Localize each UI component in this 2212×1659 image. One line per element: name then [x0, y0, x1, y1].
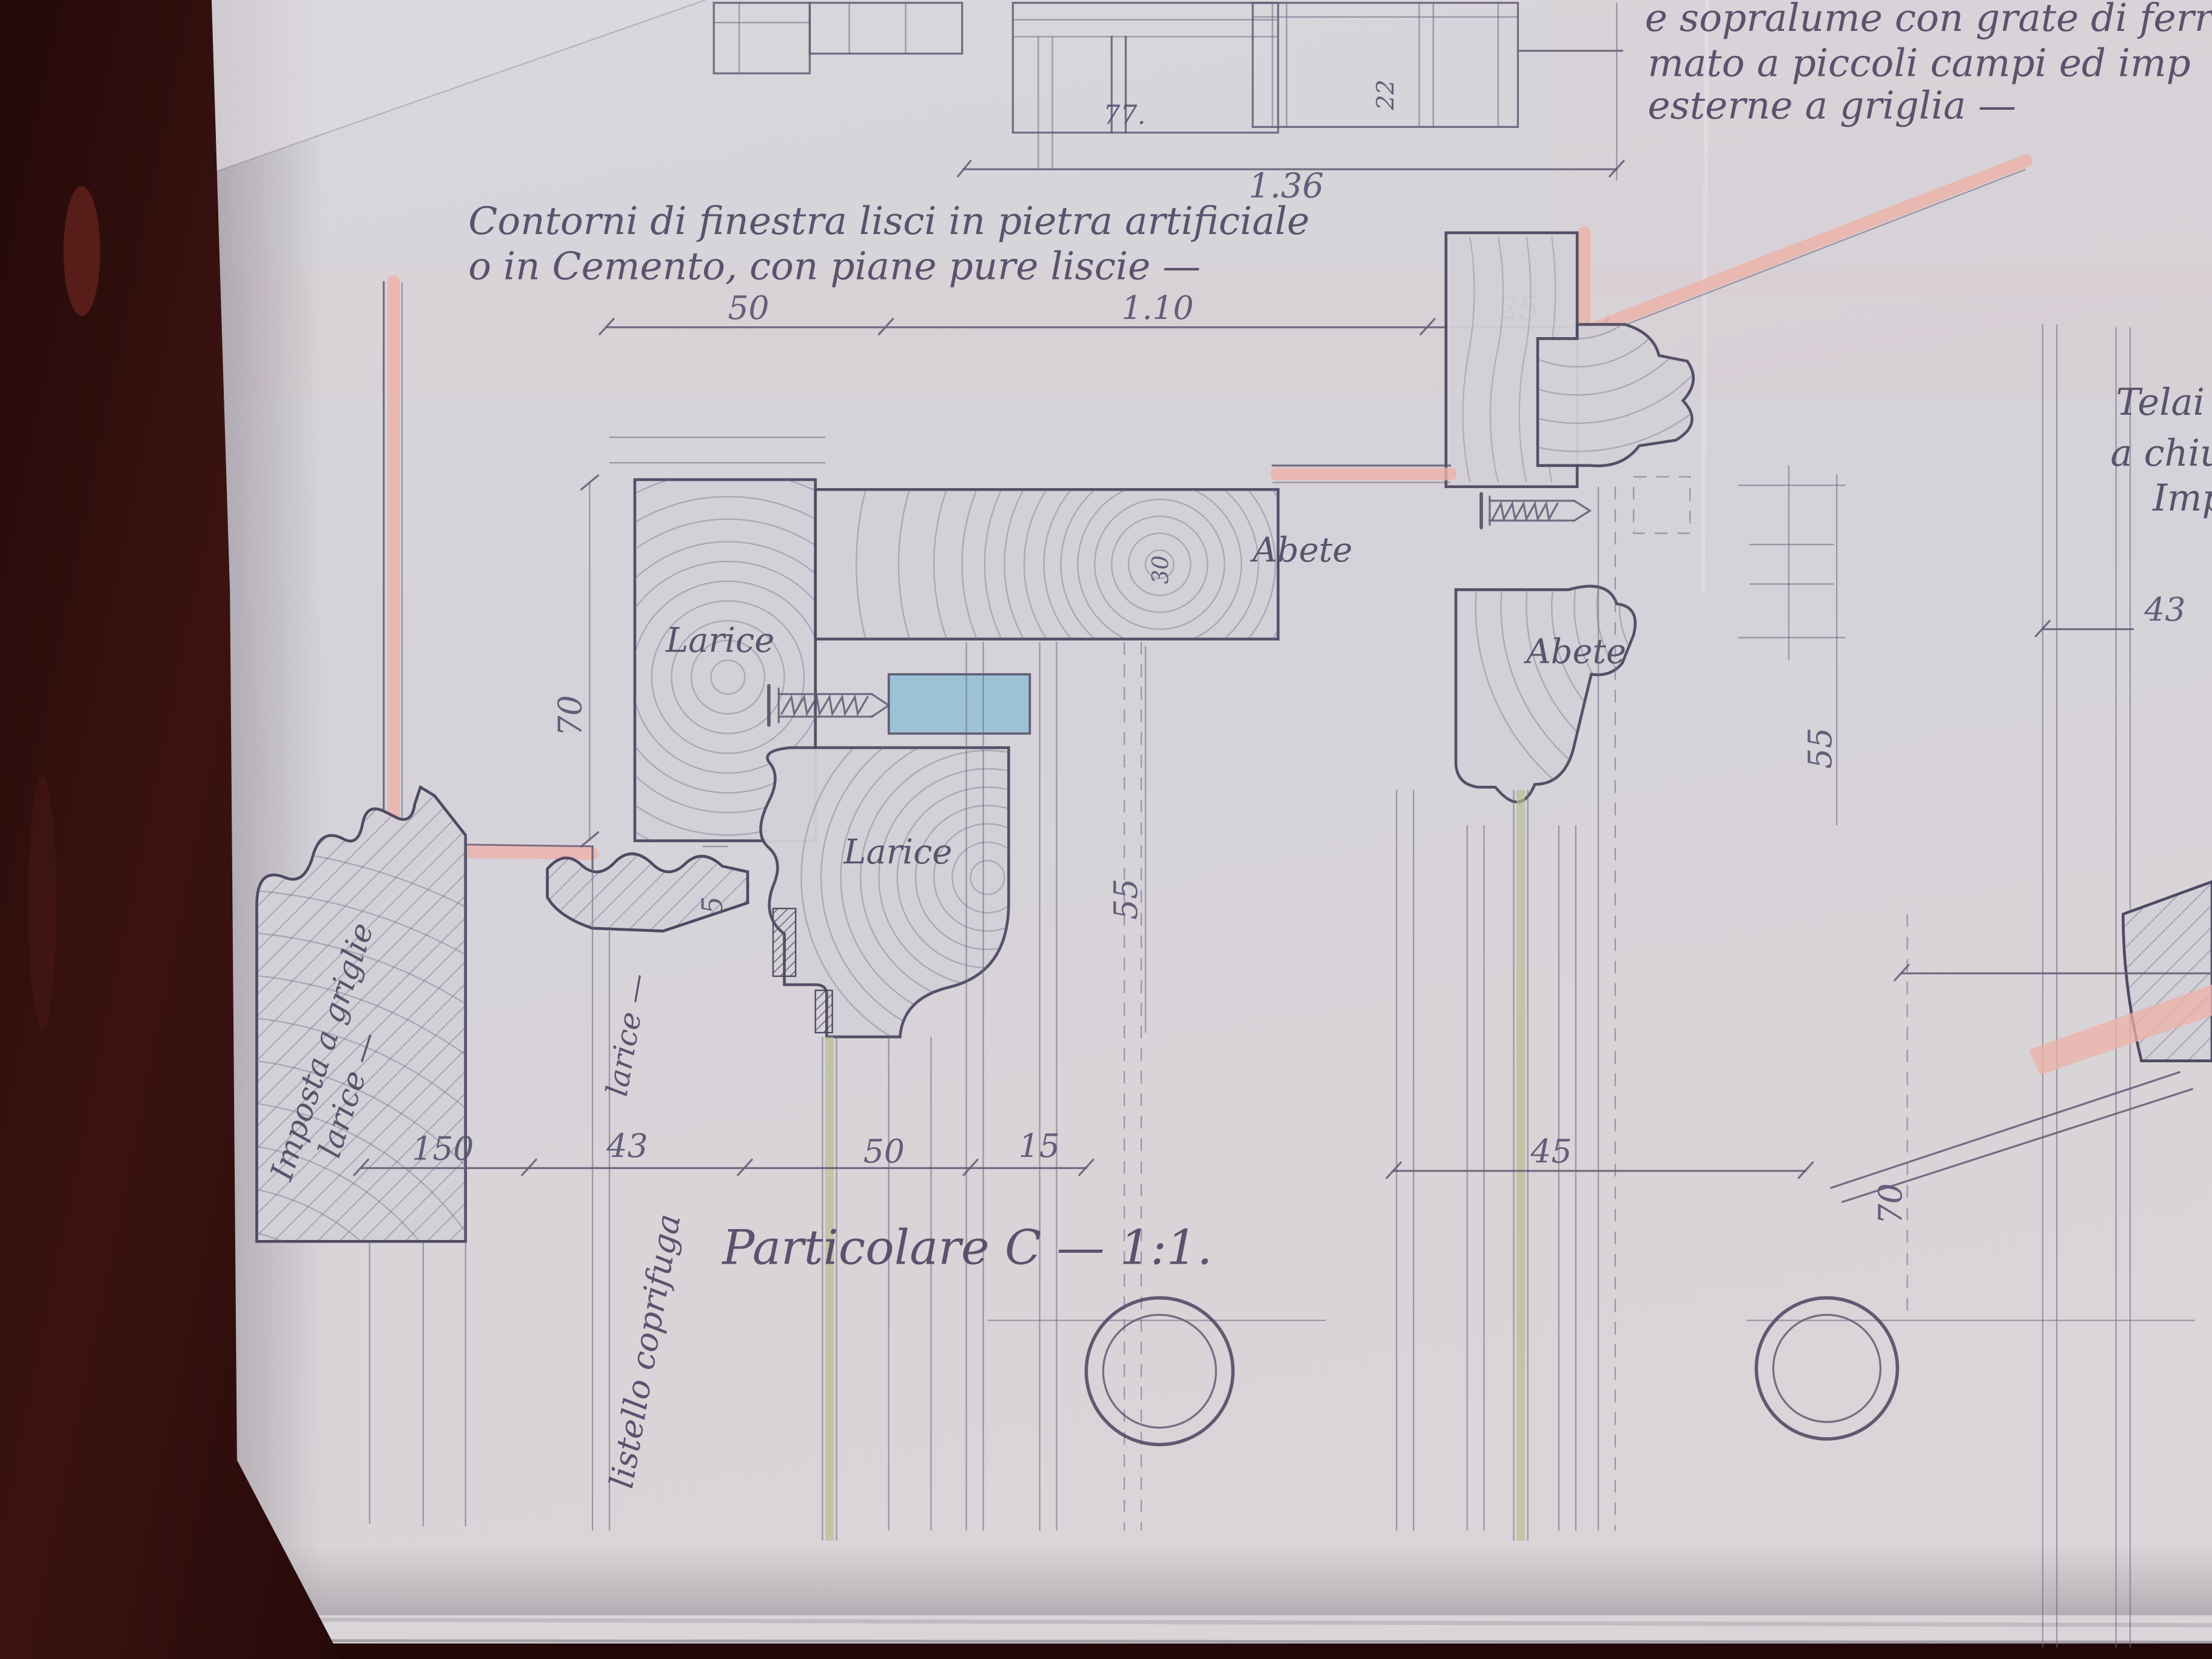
dim-bottom-2: 43	[606, 1127, 648, 1165]
dim-v-small: 5	[696, 896, 729, 914]
title-line2: o in Cemento, con piane pure liscie —	[468, 244, 1201, 289]
label-abete-beam: Abete	[1250, 531, 1353, 570]
label-abete-sill: Abete	[1523, 632, 1626, 671]
dim-right-width: 43	[2143, 591, 2185, 629]
table-highlight	[64, 186, 100, 316]
dim-bottom-3: 50	[863, 1132, 905, 1170]
top-note-line1: e sopralume con grate di ferro la	[1645, 0, 2212, 40]
side-note-line1: Telai	[2116, 381, 2205, 424]
dim-right-slope: 70	[1871, 1183, 1909, 1224]
paper-fold-shadow	[0, 1545, 2212, 1615]
dim-v-mid: 55	[1107, 879, 1145, 920]
dim-top-mid: 1.10	[1122, 289, 1194, 327]
dim-v-right: 55	[1801, 728, 1839, 769]
side-note-line2: a chiu	[2110, 432, 2212, 475]
top-note-line2: mato a piccoli campi ed imp	[1647, 41, 2191, 85]
dim-ring-center: 30	[1147, 555, 1173, 584]
dim-bottom-1: 150	[412, 1129, 474, 1167]
dim-bottom-4: 15	[1019, 1127, 1060, 1165]
blue-highlight-block	[889, 674, 1030, 734]
title-line1: Contorni di finestra lisci in pietra art…	[468, 199, 1309, 243]
dim-top-left: 50	[728, 289, 769, 327]
detail-caption: Particolare C — 1:1.	[721, 1220, 1212, 1276]
dim-bottom-5: 45	[1530, 1132, 1572, 1170]
label-larice-block: Larice	[665, 621, 774, 660]
dim-plan-side: 22	[1372, 79, 1400, 110]
photo-of-architectural-drawing: 1.36 77. 22 e sopralume con grate di fer…	[0, 0, 2212, 1659]
table-sheen	[28, 776, 57, 1030]
dim-plan-mark: 77.	[1103, 100, 1145, 131]
top-note-line3: esterne a griglia —	[1647, 83, 2016, 127]
paper-bottom-edge	[282, 1641, 2212, 1642]
drawing-sheet: 1.36 77. 22 e sopralume con grate di fer…	[0, 0, 2212, 1659]
cross-hatch-detail-2	[816, 990, 833, 1033]
section-title: Contorni di finestra lisci in pietra art…	[468, 199, 1309, 288]
cross-hatch-detail	[773, 908, 796, 976]
label-larice-sill: Larice	[843, 833, 952, 872]
side-note-line3: Imp	[2152, 477, 2212, 520]
dim-v-left: 70	[551, 695, 589, 736]
